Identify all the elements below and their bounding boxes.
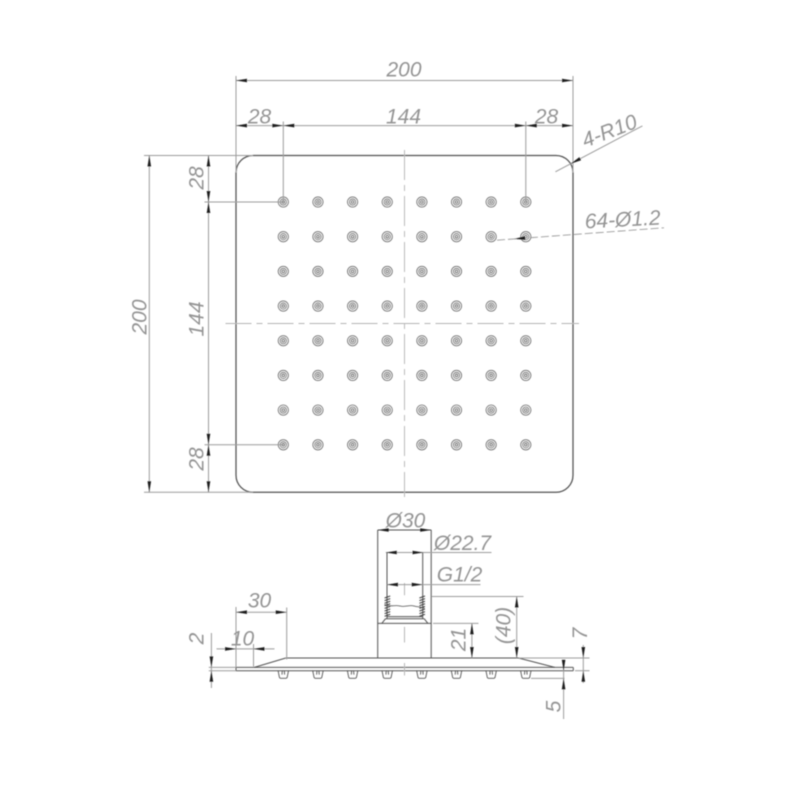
- svg-text:Ø22.7: Ø22.7: [433, 532, 493, 555]
- svg-text:10: 10: [231, 628, 255, 651]
- svg-text:200: 200: [385, 59, 421, 82]
- svg-text:144: 144: [386, 105, 421, 128]
- svg-text:30: 30: [248, 590, 272, 613]
- svg-text:64-Ø1.2: 64-Ø1.2: [584, 207, 661, 234]
- svg-text:Ø30: Ø30: [385, 510, 426, 533]
- svg-text:28: 28: [534, 105, 559, 128]
- svg-text:28: 28: [247, 105, 272, 128]
- svg-text:21: 21: [448, 628, 471, 652]
- svg-text:28: 28: [186, 166, 209, 191]
- svg-text:144: 144: [186, 301, 209, 336]
- svg-text:4-R10: 4-R10: [579, 110, 641, 152]
- svg-text:(40): (40): [493, 607, 516, 644]
- svg-text:5: 5: [543, 700, 566, 712]
- svg-text:G1/2: G1/2: [437, 564, 483, 587]
- svg-text:7: 7: [569, 626, 592, 639]
- svg-text:28: 28: [186, 447, 209, 472]
- svg-text:2: 2: [186, 632, 209, 645]
- svg-text:200: 200: [129, 299, 152, 335]
